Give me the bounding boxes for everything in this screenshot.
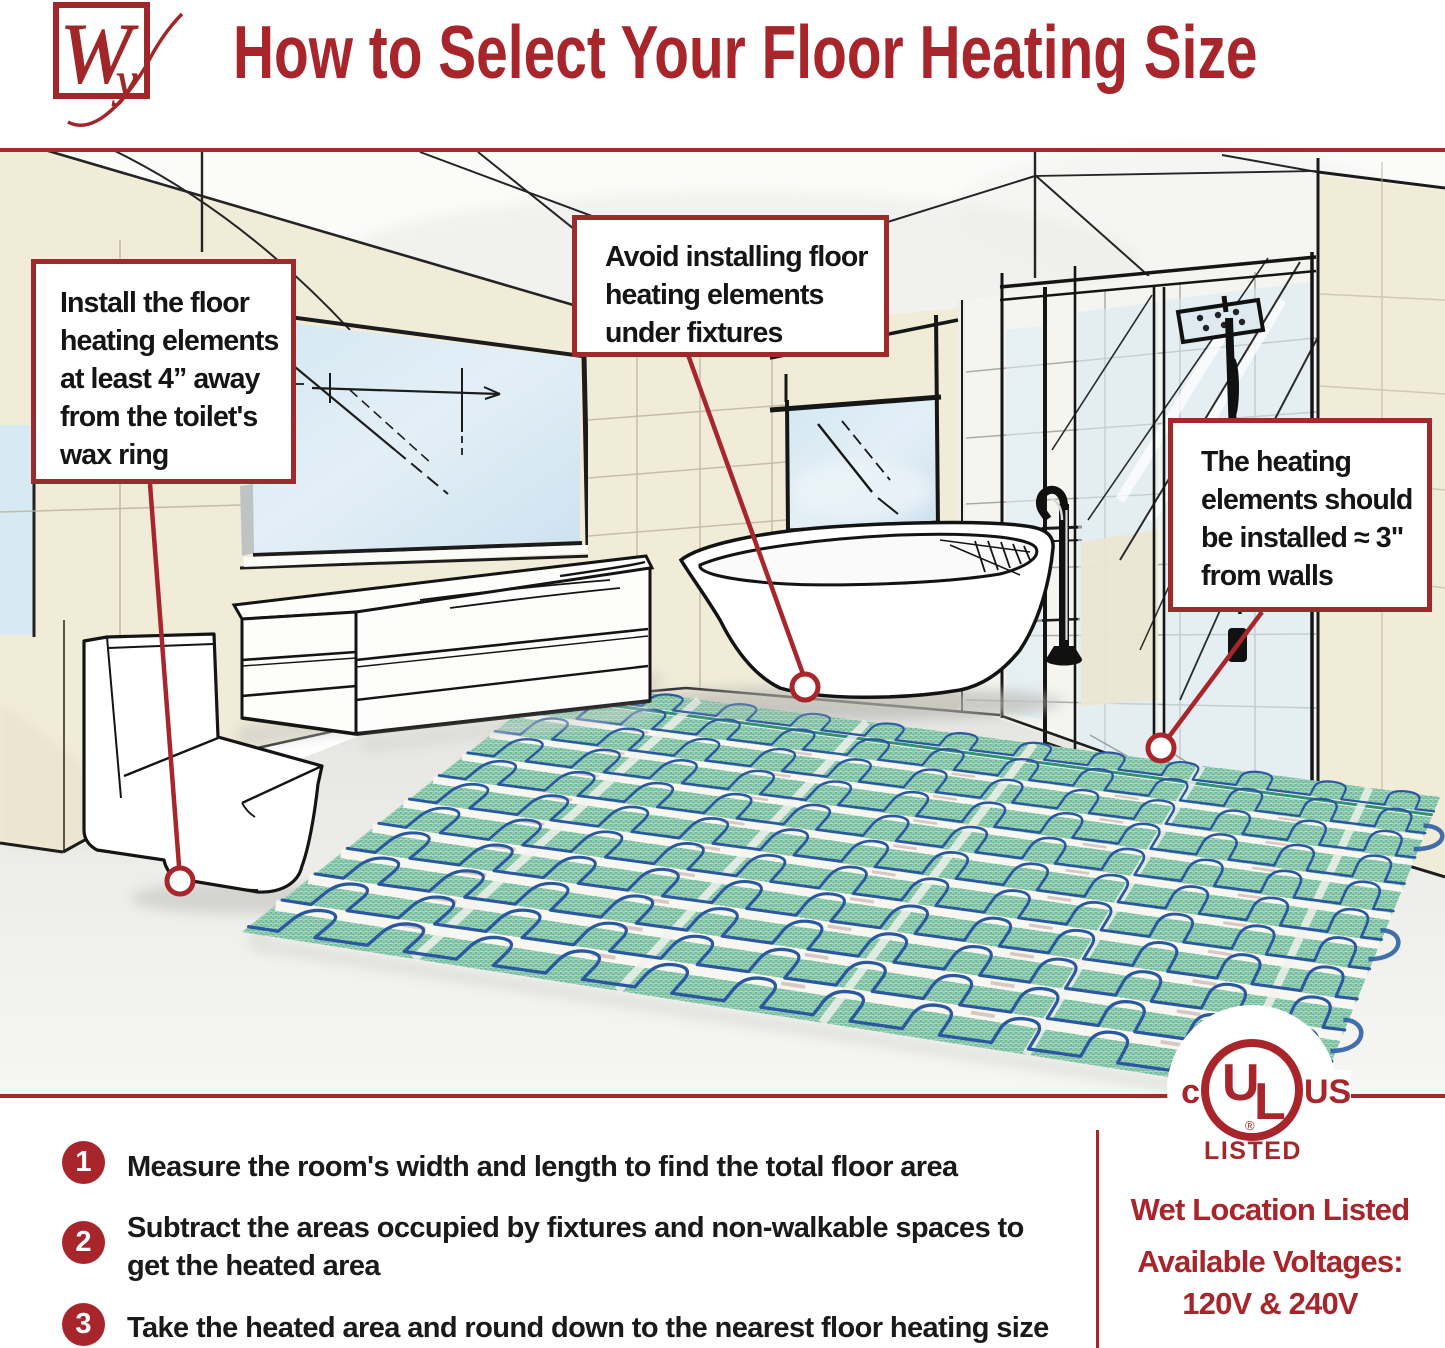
svg-text:c: c <box>1181 1073 1200 1111</box>
svg-text:®: ® <box>1245 1118 1255 1133</box>
svg-text:L: L <box>1254 1073 1286 1131</box>
svg-text:US: US <box>1304 1073 1351 1111</box>
svg-text:LISTED: LISTED <box>1204 1137 1302 1165</box>
